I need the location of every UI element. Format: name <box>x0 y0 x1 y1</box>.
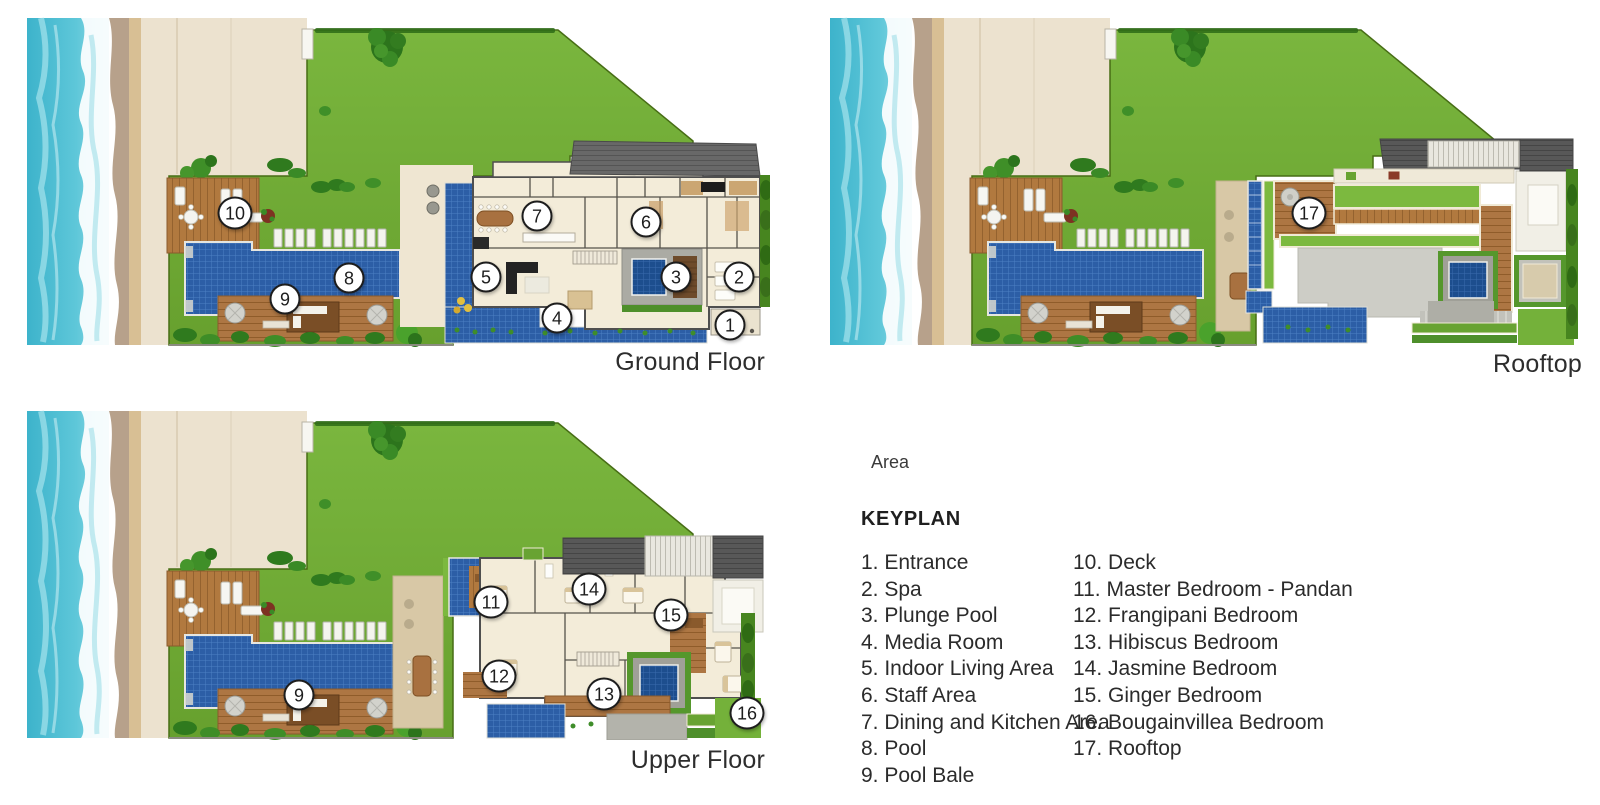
marker-4: 4 <box>542 303 573 334</box>
marker-15: 15 <box>654 599 689 632</box>
marker-5: 5 <box>471 262 502 293</box>
keyplan-item: 14. Jasmine Bedroom <box>1073 656 1353 683</box>
marker-17: 17 <box>1292 197 1327 230</box>
keyplan-item: 3. Plunge Pool <box>861 603 1110 630</box>
upper-floor-plan: 9111213141516 Upper Floor <box>25 408 770 778</box>
marker-9: 9 <box>270 284 301 315</box>
marker-10: 10 <box>218 197 253 230</box>
rooftop-plan: 17 Rooftop <box>828 15 1588 385</box>
marker-1: 1 <box>715 310 746 341</box>
keyplan-item: 1. Entrance <box>861 550 1110 577</box>
marker-16: 16 <box>730 697 765 730</box>
keyplan-item: 12. Frangipani Bedroom <box>1073 603 1353 630</box>
marker-14: 14 <box>572 573 607 606</box>
marker-8: 8 <box>334 263 365 294</box>
keyplan-column-2: 10. Deck11. Master Bedroom - Pandan12. F… <box>1073 550 1353 763</box>
keyplan-item: 2. Spa <box>861 577 1110 604</box>
keyplan-item: 17. Rooftop <box>1073 736 1353 763</box>
marker-9: 9 <box>284 680 315 711</box>
marker-2: 2 <box>724 262 755 293</box>
keyplan-item: 6. Staff Area <box>861 683 1110 710</box>
marker-11: 11 <box>474 586 509 619</box>
area-label: Area <box>871 452 909 473</box>
marker-13: 13 <box>587 678 622 711</box>
keyplan-item: 13. Hibiscus Bedroom <box>1073 630 1353 657</box>
marker-12: 12 <box>482 660 517 693</box>
upper-floor-markers: 9111213141516 <box>25 408 770 778</box>
plan-label-upper-floor: Upper Floor <box>631 746 765 775</box>
keyplan-item: 10. Deck <box>1073 550 1353 577</box>
rooftop-markers: 17 <box>828 15 1588 385</box>
keyplan-item: 5. Indoor Living Area <box>861 656 1110 683</box>
keyplan-item: 16. Bougainvillea Bedroom <box>1073 710 1353 737</box>
keyplan-item: 8. Pool <box>861 736 1110 763</box>
keyplan-column-1: 1. Entrance2. Spa3. Plunge Pool4. Media … <box>861 550 1110 789</box>
marker-6: 6 <box>631 207 662 238</box>
marker-3: 3 <box>661 262 692 293</box>
keyplan-title: KEYPLAN <box>861 508 961 531</box>
keyplan-item: 7. Dining and Kitchen Area <box>861 710 1110 737</box>
marker-7: 7 <box>522 201 553 232</box>
plan-label-ground-floor: Ground Floor <box>615 348 765 377</box>
keyplan-item: 11. Master Bedroom - Pandan <box>1073 577 1353 604</box>
keyplan-item: 9. Pool Bale <box>861 763 1110 790</box>
keyplan-item: 4. Media Room <box>861 630 1110 657</box>
keyplan-item: 15. Ginger Bedroom <box>1073 683 1353 710</box>
plan-label-rooftop: Rooftop <box>1493 350 1582 379</box>
ground-floor-markers: 12345678910 <box>25 15 770 385</box>
ground-floor-plan: 12345678910 Ground Floor <box>25 15 770 385</box>
